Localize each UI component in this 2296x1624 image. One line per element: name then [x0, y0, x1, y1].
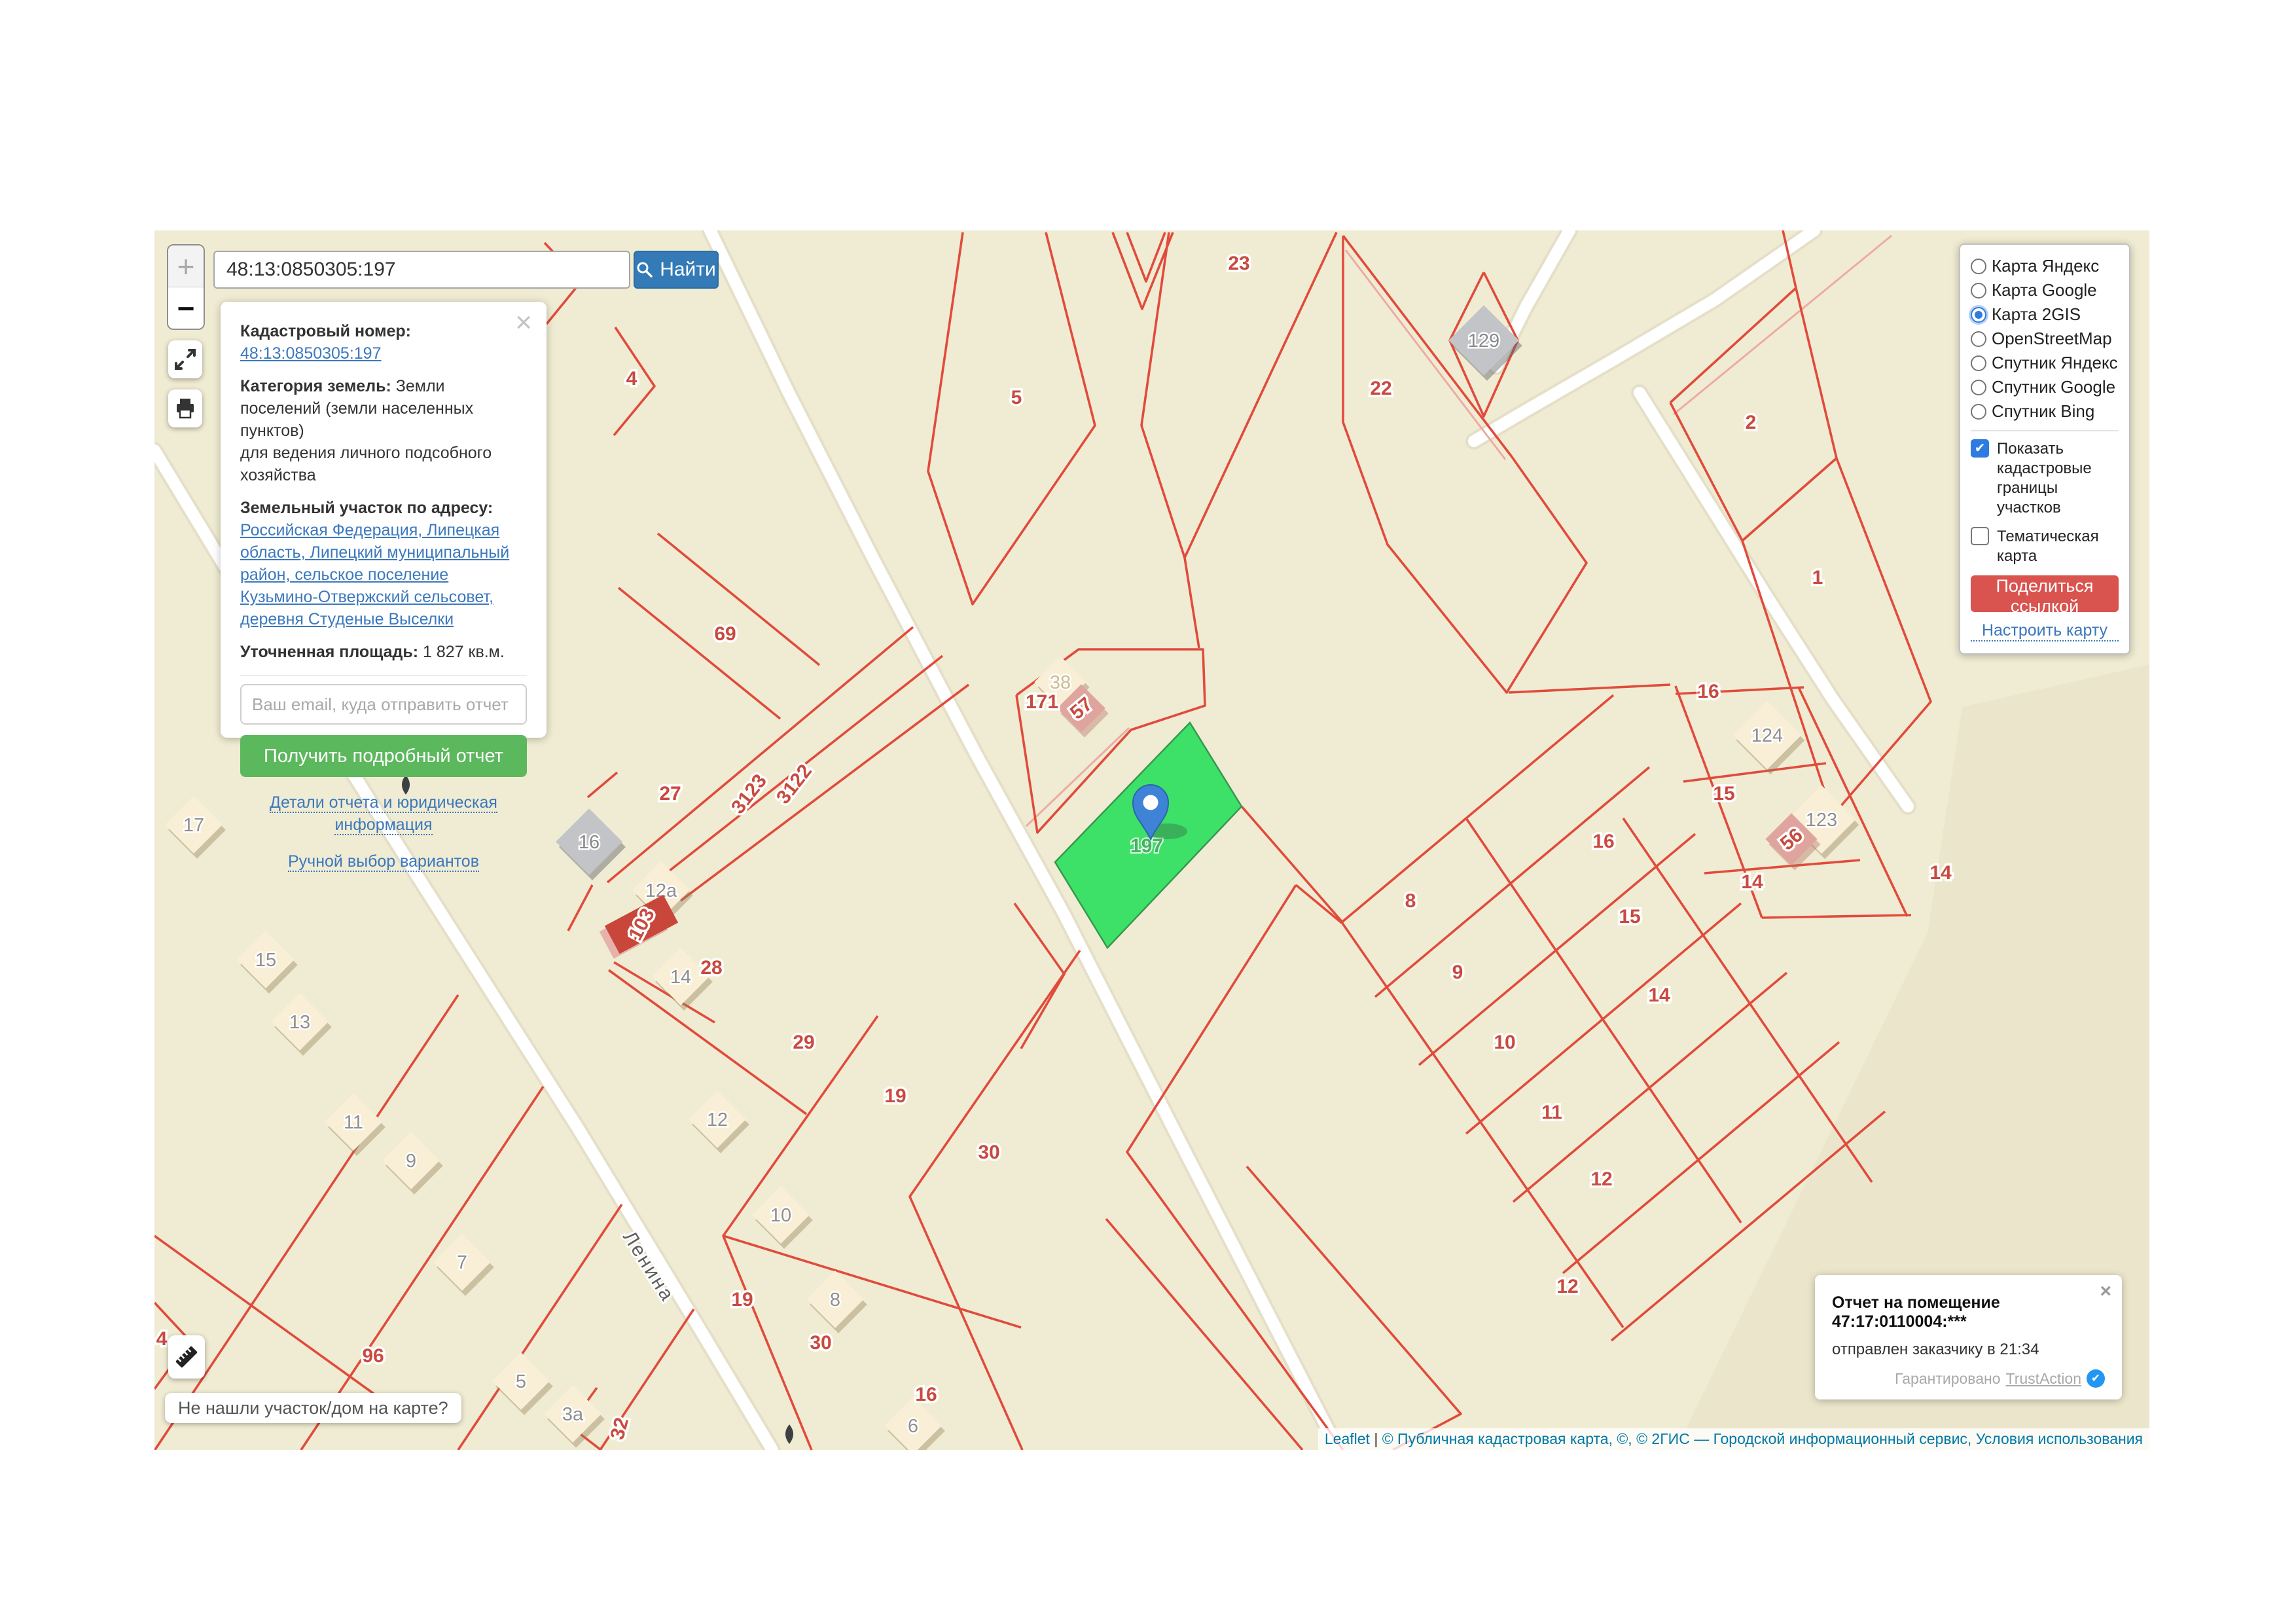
building: 5	[492, 1352, 553, 1415]
category-label: Категория земель:	[240, 377, 391, 395]
share-link-button[interactable]: Поделиться ссылкой	[1971, 575, 2119, 612]
map-viewport[interactable]: 171513119753а1210861412a3812412316129575…	[154, 230, 2149, 1450]
checkbox-label: Тематическая карта	[1997, 527, 2119, 566]
radio-icon[interactable]	[1971, 355, 1986, 371]
parcel-label: 16	[1592, 831, 1614, 852]
parcel-label: 14	[1929, 862, 1952, 884]
layer-option-label: Карта Яндекс	[1992, 256, 2099, 276]
parcel-label: 5	[1011, 387, 1022, 408]
parcel-label: 11	[1541, 1102, 1562, 1123]
ruler-icon	[172, 1341, 201, 1373]
building: 9	[382, 1132, 443, 1195]
radio-icon[interactable]	[1971, 307, 1986, 323]
layer-option[interactable]: Карта Яндекс	[1971, 254, 2119, 278]
layer-option-label: Спутник Google	[1992, 377, 2115, 397]
parcel-label: 12	[1556, 1276, 1578, 1297]
building: 11	[325, 1093, 386, 1156]
building: 129	[1448, 305, 1522, 380]
parcel-label: 1	[1812, 567, 1823, 588]
radio-icon[interactable]	[1971, 331, 1986, 347]
attribution-separator: |	[1370, 1430, 1382, 1447]
building-label: 124	[1751, 725, 1783, 746]
building-label: 129	[1468, 331, 1499, 352]
building-label: 7	[457, 1252, 467, 1273]
building: 15	[237, 931, 298, 994]
parcel-label: 32	[607, 1415, 634, 1442]
parcel-label: 69	[714, 623, 736, 645]
parcel-label: 30	[810, 1332, 831, 1354]
parcel-label: 15	[1713, 783, 1734, 804]
toast-close-icon[interactable]: ×	[2100, 1280, 2111, 1303]
area-row: Уточненная площадь: 1 827 кв.м.	[240, 641, 527, 663]
layer-option-label: Спутник Яндекс	[1992, 353, 2118, 373]
address-row: Земельный участок по адресу: Российская …	[240, 497, 527, 630]
layer-option[interactable]: OpenStreetMap	[1971, 327, 2119, 351]
building-label: 14	[670, 967, 691, 988]
parcel-label: 9	[1452, 962, 1463, 983]
parcel-label: 22	[1370, 378, 1391, 399]
parcel-label: 4	[156, 1328, 168, 1350]
layer-option[interactable]: Карта 2GIS	[1971, 302, 2119, 327]
leaflet-link[interactable]: Leaflet	[1325, 1430, 1370, 1447]
layers-panel: Карта ЯндексКарта GoogleКарта 2GISOpenSt…	[1959, 244, 2130, 655]
parcel-label: 19	[884, 1085, 906, 1107]
address-label: Земельный участок по адресу:	[240, 499, 493, 517]
building-label: 16	[579, 832, 600, 853]
building-label: 10	[770, 1205, 791, 1226]
parcel-label: 29	[793, 1032, 814, 1053]
print-button[interactable]	[168, 389, 202, 427]
report-details-link[interactable]: Детали отчета и юридическая информация	[270, 793, 497, 835]
divider	[240, 675, 527, 676]
radio-icon[interactable]	[1971, 404, 1986, 420]
attribution-text[interactable]: © Публичная кадастровая карта, ©, © 2ГИС…	[1382, 1430, 2143, 1447]
toast-line: отправлен заказчику в 21:34	[1832, 1341, 2105, 1359]
cadastral-number-link[interactable]: 48:13:0850305:197	[240, 344, 382, 363]
parcel-label: 23	[1228, 253, 1249, 274]
layer-checkboxes: ✔Показать кадастровые границы участковТе…	[1971, 439, 2119, 566]
get-report-button[interactable]: Получить подробный отчет	[240, 735, 527, 777]
checkbox-icon[interactable]: ✔	[1971, 439, 1989, 458]
parcel-label: 8	[1405, 890, 1416, 912]
parcel-label: 16	[915, 1384, 937, 1405]
layer-option[interactable]: Спутник Google	[1971, 375, 2119, 399]
toast-footer: Гарантировано TrustAction ✔	[1832, 1369, 2105, 1388]
radio-icon[interactable]	[1971, 380, 1986, 395]
not-found-button[interactable]: Не нашли участок/дом на карте?	[165, 1393, 461, 1423]
search-icon	[636, 261, 653, 278]
radio-icon[interactable]	[1971, 259, 1986, 274]
checkbox-label: Показать кадастровые границы участков	[1997, 439, 2119, 518]
building-label: 6	[908, 1416, 918, 1437]
configure-map-link[interactable]: Настроить карту	[1971, 621, 2119, 641]
layer-option-label: Карта Google	[1992, 280, 2097, 300]
building-label: 15	[255, 950, 276, 971]
layer-option[interactable]: Спутник Яндекс	[1971, 351, 2119, 375]
building-label: 17	[183, 815, 204, 836]
parcel-label: 14	[1648, 984, 1670, 1006]
zoom-in-button[interactable]: +	[168, 245, 204, 287]
toast-title: Отчет на помещение 47:17:0110004:***	[1832, 1293, 2105, 1331]
layer-options: Карта ЯндексКарта GoogleКарта 2GISOpenSt…	[1971, 254, 2119, 424]
parcel-label: 12	[1590, 1168, 1612, 1190]
manual-select-link[interactable]: Ручной выбор вариантов	[288, 852, 479, 872]
page: 171513119753а1210861412a3812412316129575…	[0, 0, 2296, 1624]
radio-icon[interactable]	[1971, 283, 1986, 298]
parcel-label: 171	[1026, 691, 1058, 713]
parcel-label: 19	[731, 1289, 753, 1310]
printer-icon	[172, 395, 198, 422]
layer-option-label: Спутник Bing	[1992, 401, 2094, 422]
building: 7	[433, 1233, 494, 1296]
email-field[interactable]	[240, 684, 527, 725]
layer-option-label: Карта 2GIS	[1992, 304, 2081, 325]
building: 103	[600, 895, 678, 959]
parcel-label: 28	[700, 957, 722, 979]
building-label: 123	[1806, 810, 1837, 831]
category-row: Категория земель: Земли поселений (земли…	[240, 375, 527, 486]
layer-option[interactable]: Спутник Bing	[1971, 399, 2119, 424]
trustaction-link[interactable]: TrustAction	[2006, 1370, 2081, 1388]
layer-checkbox[interactable]: ✔Показать кадастровые границы участков	[1971, 439, 2119, 518]
building-label: 5	[516, 1371, 526, 1392]
building: 16	[556, 808, 626, 880]
building-label: 13	[289, 1012, 310, 1033]
checkbox-icon[interactable]	[1971, 527, 1989, 545]
search-button-label: Найти	[660, 259, 716, 281]
cadastral-number-row: Кадастровый номер: 48:13:0850305:197	[240, 320, 527, 365]
report-toast: × Отчет на помещение 47:17:0110004:*** о…	[1815, 1275, 2122, 1399]
building: 10	[752, 1186, 813, 1249]
layer-checkbox[interactable]: Тематическая карта	[1971, 527, 2119, 566]
building: 124	[1733, 701, 1805, 775]
cadastral-number-label: Кадастровый номер:	[240, 322, 411, 340]
parcel-label: 10	[1494, 1032, 1515, 1053]
area-label: Уточненная площадь:	[240, 643, 418, 661]
building-label: 9	[406, 1151, 416, 1172]
verified-badge-icon: ✔	[2087, 1369, 2105, 1388]
divider	[1971, 430, 2119, 431]
layer-option-label: OpenStreetMap	[1992, 329, 2112, 349]
measure-button[interactable]	[168, 1335, 205, 1379]
parcel-label: 16	[1697, 681, 1719, 702]
layer-option[interactable]: Карта Google	[1971, 278, 2119, 302]
zoom-out-button[interactable]: −	[168, 287, 204, 329]
building: 17	[165, 796, 226, 859]
parcel-label: 2	[1746, 412, 1757, 433]
close-icon[interactable]: ×	[515, 308, 532, 337]
parcel-label: 14	[1741, 871, 1763, 893]
category-extra: для ведения личного подсобного хозяйства	[240, 444, 492, 484]
building: 8	[806, 1271, 867, 1333]
building-label: 8	[830, 1290, 840, 1310]
zoom-control: + −	[167, 244, 205, 330]
building: 3а	[544, 1385, 605, 1448]
parcel-label: 30	[978, 1142, 999, 1163]
area-value: 1 827 кв.м.	[423, 643, 505, 661]
fullscreen-button[interactable]	[168, 340, 202, 378]
search-button[interactable]: Найти	[634, 251, 719, 289]
parcel-info-panel: × Кадастровый номер: 48:13:0850305:197 К…	[221, 302, 547, 738]
building-label: 12	[707, 1110, 728, 1130]
fullscreen-icon	[172, 346, 198, 372]
parcel-label: 15	[1619, 906, 1640, 928]
guarantee-prefix: Гарантировано	[1895, 1370, 2000, 1388]
building: 12	[689, 1091, 749, 1153]
parcel-label: 4	[626, 368, 637, 389]
building-label: 38	[1050, 672, 1071, 693]
parcel-label: 96	[362, 1345, 384, 1367]
building-label: 11	[344, 1112, 363, 1133]
search-input[interactable]	[213, 251, 630, 289]
attribution: Leaflet | © Публичная кадастровая карта,…	[1318, 1428, 2149, 1450]
building-label: 3а	[562, 1404, 584, 1425]
address-link[interactable]: Российская Федерация, Липецкая область, …	[240, 521, 509, 628]
parcel-label: 27	[659, 783, 681, 804]
selected-parcel-number: 197	[1130, 835, 1163, 857]
building: 13	[271, 993, 332, 1056]
